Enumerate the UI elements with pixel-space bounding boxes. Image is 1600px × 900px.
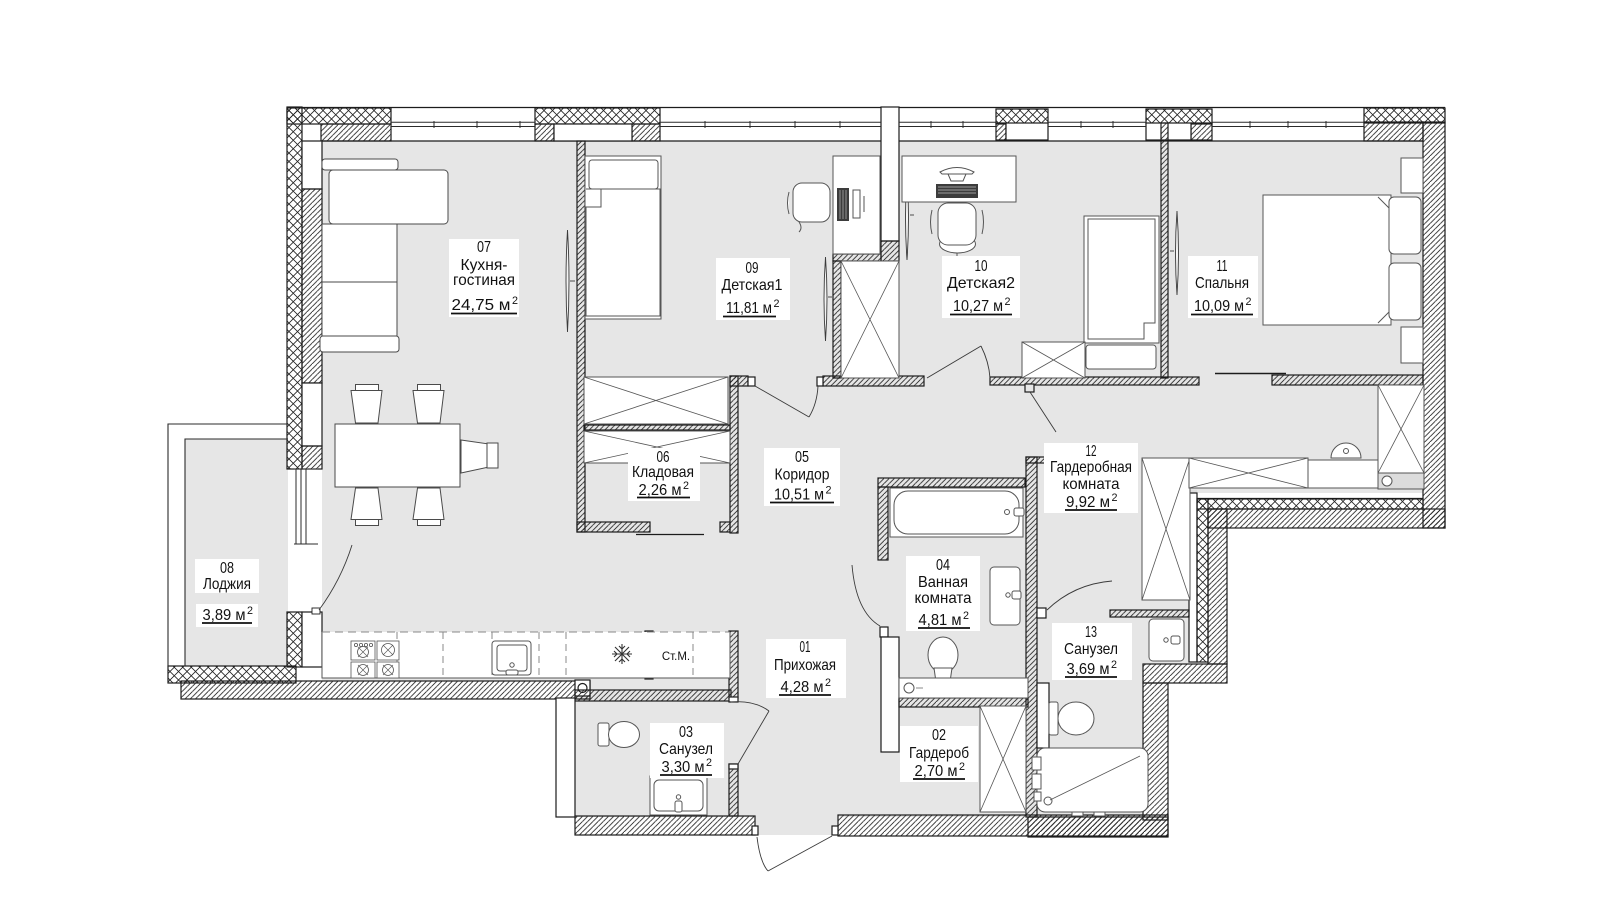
svg-text:Гардероб: Гардероб <box>909 745 969 762</box>
svg-text:2: 2 <box>825 677 831 689</box>
svg-text:Ванная: Ванная <box>918 574 968 591</box>
svg-text:10,27 м: 10,27 м <box>953 298 1003 315</box>
svg-text:2: 2 <box>1111 659 1117 671</box>
svg-text:12: 12 <box>1086 443 1097 460</box>
svg-text:10,51 м: 10,51 м <box>774 487 824 504</box>
svg-text:2: 2 <box>683 480 689 492</box>
svg-text:гостиная: гостиная <box>453 272 515 289</box>
svg-text:комната: комната <box>1063 476 1120 493</box>
svg-text:2: 2 <box>963 610 969 622</box>
svg-text:11,81 м: 11,81 м <box>726 300 772 317</box>
svg-text:2: 2 <box>774 298 780 310</box>
svg-text:4,81 м: 4,81 м <box>919 612 962 629</box>
svg-text:Коридор: Коридор <box>775 467 830 484</box>
svg-text:Прихожая: Прихожая <box>774 657 836 674</box>
svg-text:4,28 м: 4,28 м <box>781 679 824 696</box>
svg-text:2: 2 <box>826 485 832 497</box>
svg-text:2: 2 <box>1246 296 1252 308</box>
svg-text:Кладовая: Кладовая <box>632 464 694 481</box>
svg-text:2,70 м: 2,70 м <box>915 763 958 780</box>
svg-text:2: 2 <box>512 295 518 307</box>
svg-text:2: 2 <box>706 757 712 769</box>
svg-text:13: 13 <box>1085 624 1097 641</box>
svg-text:Детская1: Детская1 <box>722 277 783 294</box>
svg-text:Детская2: Детская2 <box>947 275 1015 292</box>
svg-text:07: 07 <box>477 239 491 256</box>
svg-text:03: 03 <box>679 724 693 741</box>
svg-text:Санузел: Санузел <box>659 741 713 758</box>
svg-text:2: 2 <box>1005 296 1011 308</box>
svg-text:9,92 м: 9,92 м <box>1066 494 1110 511</box>
svg-text:3,69 м: 3,69 м <box>1067 661 1110 678</box>
svg-text:3,30 м: 3,30 м <box>662 759 705 776</box>
svg-text:2,26 м: 2,26 м <box>639 482 682 499</box>
svg-text:01: 01 <box>800 639 811 656</box>
svg-text:3,89 м: 3,89 м <box>203 607 246 624</box>
svg-text:2: 2 <box>247 605 253 617</box>
svg-text:2: 2 <box>959 761 965 773</box>
svg-text:комната: комната <box>915 590 972 607</box>
svg-text:11: 11 <box>1217 258 1228 275</box>
svg-text:04: 04 <box>936 557 950 574</box>
svg-text:09: 09 <box>746 260 759 277</box>
svg-text:24,75 м: 24,75 м <box>452 297 511 314</box>
svg-text:2: 2 <box>1112 492 1118 504</box>
svg-text:Гардеробная: Гардеробная <box>1050 459 1132 476</box>
svg-text:10,09 м: 10,09 м <box>1194 298 1244 315</box>
svg-text:Лоджия: Лоджия <box>203 576 251 593</box>
svg-text:08: 08 <box>220 560 234 577</box>
svg-text:02: 02 <box>932 727 946 744</box>
svg-text:10: 10 <box>975 258 988 275</box>
svg-text:Спальня: Спальня <box>1195 275 1249 292</box>
svg-text:05: 05 <box>795 449 809 466</box>
svg-text:Санузел: Санузел <box>1064 641 1118 658</box>
svg-text:Ст.М.: Ст.М. <box>662 651 690 663</box>
